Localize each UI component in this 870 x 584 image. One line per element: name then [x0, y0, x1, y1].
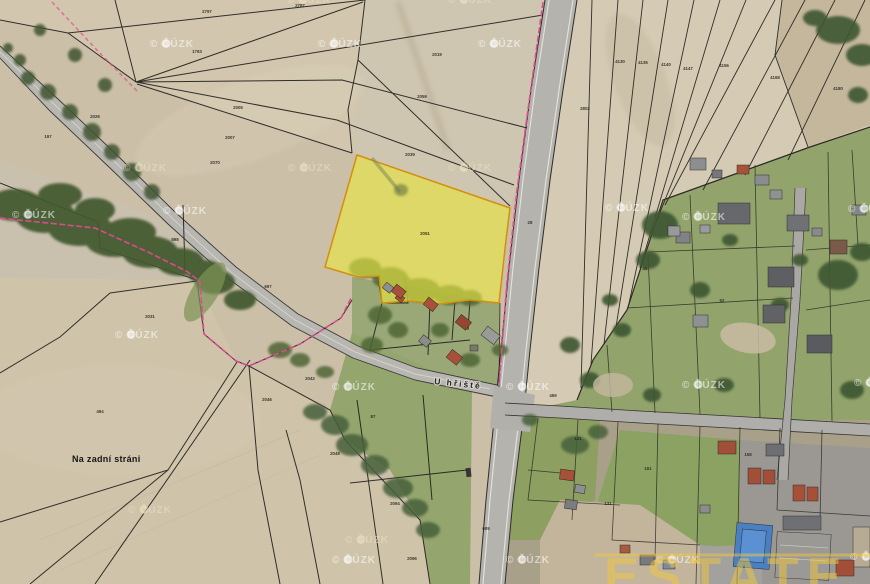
svg-text:© ČÚZK: © ČÚZK [332, 553, 376, 566]
parcel-number: 697 [264, 284, 272, 289]
parcel-number: 2094 [390, 501, 400, 506]
svg-text:© ČÚZK: © ČÚZK [128, 503, 172, 516]
svg-text:© ČÚZK: © ČÚZK [287, 0, 331, 6]
svg-text:© ČÚZK: © ČÚZK [123, 161, 167, 174]
svg-text:© ČÚZK: © ČÚZK [682, 378, 726, 391]
cuzk-watermark: © ČÚZK [128, 503, 172, 516]
svg-text:© ČÚZK: © ČÚZK [448, 0, 492, 6]
parcel-number: 459 [549, 393, 557, 398]
svg-text:© ČÚZK: © ČÚZK [506, 553, 550, 566]
parcel-number: 4180 [833, 86, 843, 91]
svg-text:© ČÚZK: © ČÚZK [605, 201, 649, 214]
parcel-number: 4140 [661, 62, 671, 67]
cuzk-watermark: © ČÚZK [854, 376, 870, 389]
cuzk-watermark: © ČÚZK [332, 380, 376, 393]
parcel-number: 52 [720, 298, 725, 303]
parcel-number: 609 [482, 526, 490, 531]
cuzk-watermark: © ČÚZK [288, 161, 332, 174]
cuzk-watermark: © ČÚZK [345, 533, 389, 546]
parcel-number: 4156 [719, 63, 729, 68]
parcel-number: 2797 [202, 9, 212, 14]
cuzk-watermark: © ČÚZK [448, 161, 492, 174]
svg-text:© ČÚZK: © ČÚZK [163, 204, 207, 217]
svg-text:© ČÚZK: © ČÚZK [682, 210, 726, 223]
parcel-number: 2005 [233, 105, 243, 110]
parcel-number: 45 [643, 266, 648, 271]
svg-text:© ČÚZK: © ČÚZK [115, 328, 159, 341]
svg-text:© ČÚZK: © ČÚZK [12, 208, 56, 221]
parcel-number: 161 [644, 466, 652, 471]
parcel-number: 2031 [145, 314, 155, 319]
parcel-number: 28 [528, 220, 533, 225]
cuzk-watermark: © ČÚZK [605, 201, 649, 214]
svg-text:© ČÚZK: © ČÚZK [848, 202, 870, 215]
parcel-number: 121 [574, 436, 582, 441]
cuzk-watermark: © ČÚZK [332, 553, 376, 566]
parcel-number: 2059 [417, 94, 427, 99]
svg-text:© ČÚZK: © ČÚZK [318, 37, 362, 50]
field-name-label: Na zadní stráni [72, 454, 141, 464]
portal-watermark-text: ESTATE [604, 548, 849, 584]
parcel-number: 2802 [580, 106, 590, 111]
parcel-number: 2046 [262, 397, 272, 402]
parcel-number: 4130 [615, 59, 625, 64]
parcel-number: 158 [744, 452, 752, 457]
parcel-number: 4135 [638, 60, 648, 65]
parcel-number: 87 [371, 414, 376, 419]
cuzk-watermark: © ČÚZK [848, 202, 870, 215]
selected-parcel-number: 2051 [420, 231, 430, 236]
cuzk-watermark: © ČÚZK [448, 0, 492, 6]
parcel-number: 2026 [90, 114, 100, 119]
parcel-number: 4147 [683, 66, 693, 71]
parcel-number: 4168 [770, 75, 780, 80]
parcel-number: 2042 [305, 376, 315, 381]
cuzk-watermark: © ČÚZK [506, 380, 550, 393]
parcel-number: 2019 [432, 52, 442, 57]
map-canvas[interactable]: 2051 [0, 0, 870, 584]
svg-text:© ČÚZK: © ČÚZK [506, 380, 550, 393]
cuzk-watermark: © ČÚZK [150, 37, 194, 50]
cuzk-watermark: © ČÚZK [506, 553, 550, 566]
parcel-number: 2039 [405, 152, 415, 157]
parcel-number: 2048 [330, 451, 340, 456]
svg-text:© ČÚZK: © ČÚZK [332, 380, 376, 393]
svg-text:© ČÚZK: © ČÚZK [345, 533, 389, 546]
parcel-number: 131 [604, 501, 612, 506]
cuzk-watermark: © ČÚZK [287, 0, 331, 6]
parcel-number: 197 [44, 134, 52, 139]
parcel-number: 2096 [407, 556, 417, 561]
car-on-road [466, 468, 472, 477]
svg-text:© ČÚZK: © ČÚZK [288, 161, 332, 174]
cuzk-watermark: © ČÚZK [163, 204, 207, 217]
cuzk-watermark: © ČÚZK [115, 328, 159, 341]
parcel-number: 2070 [210, 160, 220, 165]
cuzk-watermark: © ČÚZK [682, 210, 726, 223]
cuzk-watermark: © ČÚZK [12, 208, 56, 221]
svg-text:© ČÚZK: © ČÚZK [854, 376, 870, 389]
cuzk-watermark: © ČÚZK [478, 37, 522, 50]
cuzk-watermark: © ČÚZK [318, 37, 362, 50]
parcel-number: 494 [96, 409, 104, 414]
svg-text:© ČÚZK: © ČÚZK [448, 161, 492, 174]
cuzk-watermark: © ČÚZK [123, 161, 167, 174]
svg-text:© ČÚZK: © ČÚZK [150, 37, 194, 50]
parcel-number: 2007 [225, 135, 235, 140]
cuzk-watermark: © ČÚZK [682, 378, 726, 391]
portal-watermark: ESTATE [595, 548, 870, 584]
parcel-number: 898 [171, 237, 179, 242]
cadastral-map-viewport[interactable]: 2051 [0, 0, 870, 584]
svg-text:© ČÚZK: © ČÚZK [478, 37, 522, 50]
